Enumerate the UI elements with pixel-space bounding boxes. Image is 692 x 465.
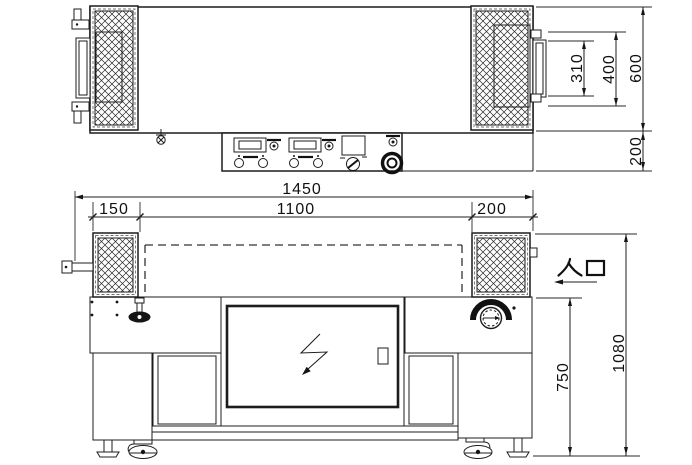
right-leveling-foot [507, 438, 529, 457]
left-leveling-foot [97, 440, 119, 457]
top-view-dimensions: 310 400 600 200 [536, 7, 652, 171]
right-tab-bottom [531, 94, 541, 102]
machine-drawing: 310 400 600 200 1450 150 1100 200 [0, 0, 692, 465]
entrance-direction-arrow [554, 280, 597, 285]
table-left [90, 297, 222, 353]
dim-750: 750 [555, 362, 572, 392]
left-caster [128, 440, 157, 459]
conveyor-tunnel-dashed [145, 245, 462, 296]
dim-200-right: 200 [477, 201, 507, 218]
top-view [72, 6, 546, 173]
dim-1450: 1450 [282, 181, 322, 198]
dim-200-ledge: 200 [628, 136, 645, 166]
right-side-door [533, 40, 546, 97]
electrical-cabinet [221, 297, 404, 426]
dim-1080: 1080 [611, 333, 628, 373]
left-leg [93, 353, 152, 440]
right-caster [464, 438, 492, 459]
right-tab-top [531, 30, 541, 38]
cabinet-door[interactable] [227, 306, 398, 407]
left-guard-block-front [93, 233, 138, 297]
dim-400: 400 [601, 54, 618, 84]
dim-1100: 1100 [277, 201, 315, 218]
front-view-dimensions: 750 1080 [533, 234, 640, 456]
control-panel [222, 133, 402, 173]
machine-body-top [90, 7, 533, 133]
left-guard-block-top [72, 6, 138, 130]
left-clamp-front [62, 261, 93, 273]
dim-310: 310 [569, 53, 586, 83]
right-guard-block-top [471, 6, 546, 130]
dim-150: 150 [99, 201, 129, 218]
base-rail [152, 426, 458, 440]
right-leg [458, 353, 532, 438]
table-right [405, 297, 532, 353]
right-guard-block-front [472, 233, 537, 297]
left-clamp-bottom [72, 102, 89, 123]
entrance-label [559, 259, 605, 276]
engineering-drawing-sheet: 310 400 600 200 1450 150 1100 200 [0, 0, 692, 465]
right-bay [404, 353, 458, 426]
left-side-door [76, 38, 90, 98]
dim-600: 600 [628, 53, 645, 83]
front-view [62, 233, 537, 459]
left-bay [153, 353, 221, 426]
left-clamp-top [72, 9, 89, 29]
